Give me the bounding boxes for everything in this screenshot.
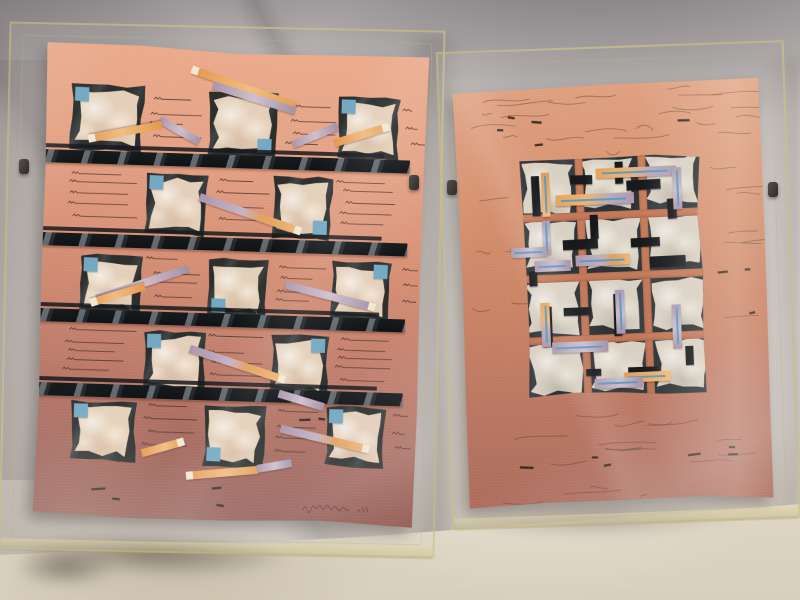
collage-strip	[575, 253, 629, 266]
blue-square	[311, 338, 325, 352]
blue-square	[147, 333, 161, 347]
strip-blue-line	[556, 345, 603, 349]
right-artwork: .s{stroke:#4a332a;stroke-width:.9;opacit…	[452, 78, 775, 510]
black-bar	[631, 237, 660, 247]
collage-strip	[540, 303, 551, 347]
right-artwork-paper: .s{stroke:#4a332a;stroke-width:.9;opacit…	[452, 78, 775, 510]
frame-clip	[19, 159, 29, 174]
blue-square	[84, 257, 99, 272]
strip-blue-line	[537, 264, 567, 267]
strip-tip	[186, 471, 194, 480]
strip-tip	[88, 133, 96, 142]
strip-blue-line	[601, 170, 667, 175]
tissue-square-patch	[144, 171, 209, 238]
blue-square	[75, 87, 90, 102]
black-bar	[529, 271, 538, 286]
frame-clip	[447, 180, 457, 195]
collage-strip	[535, 260, 571, 272]
tissue-square-patch	[271, 175, 333, 241]
blue-square	[149, 175, 164, 190]
collage-strip	[615, 290, 626, 334]
black-bar	[586, 369, 601, 376]
black-bar	[570, 175, 592, 185]
strip-blue-line	[618, 293, 622, 330]
black-bar	[564, 307, 591, 316]
collage-strip	[595, 377, 643, 389]
blue-square	[329, 409, 344, 424]
frame-clip	[768, 182, 778, 197]
tissue-cell	[655, 336, 710, 389]
frame-clip	[409, 175, 419, 190]
strip-blue-line	[544, 306, 548, 343]
strip-tip	[190, 66, 199, 76]
collage-strip	[552, 340, 608, 353]
strip-blue-line	[514, 251, 544, 254]
collage-strip	[511, 247, 547, 258]
blue-square	[206, 447, 221, 462]
blue-square	[342, 99, 356, 113]
black-bar	[590, 215, 599, 239]
artist-signature	[301, 500, 371, 518]
strip-blue-line	[579, 258, 624, 262]
strip-blue-line	[544, 176, 548, 213]
photo-scene: .s{stroke:#3f2b1f;stroke-width:.9;opacit…	[0, 0, 800, 600]
tissue-square-patch	[202, 403, 267, 470]
blue-square	[373, 264, 388, 279]
black-bar	[563, 238, 598, 250]
black-bar	[626, 179, 660, 191]
strip-blue-line	[598, 381, 638, 385]
strip-blue-line	[675, 307, 679, 344]
central-motif	[519, 152, 709, 399]
blue-square	[74, 403, 88, 417]
black-bar	[685, 346, 694, 365]
collage-strip	[672, 167, 683, 209]
collage-strip	[671, 304, 682, 348]
strip-blue-line	[561, 197, 626, 202]
tissue-square-patch	[69, 83, 146, 154]
blue-square	[312, 221, 326, 235]
left-artwork: .s{stroke:#3f2b1f;stroke-width:.9;opacit…	[33, 42, 430, 528]
strip-blue-line	[675, 170, 678, 205]
tissue-square-patch	[69, 399, 137, 463]
black-bar	[649, 255, 685, 268]
left-artwork-paper: .s{stroke:#3f2b1f;stroke-width:.9;opacit…	[33, 42, 430, 528]
